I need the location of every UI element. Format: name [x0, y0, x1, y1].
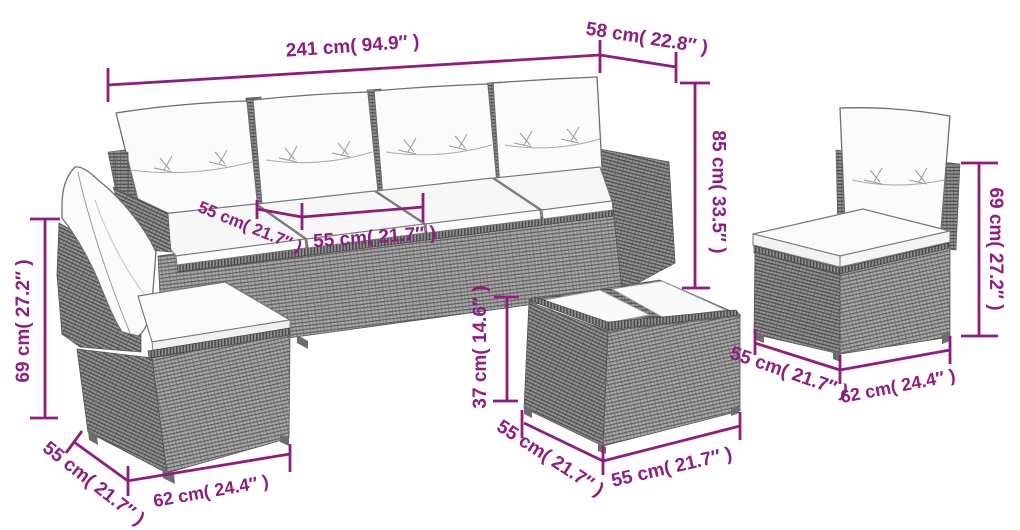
svg-text:69 cm( 27.2″ ): 69 cm( 27.2″ ) — [985, 187, 1006, 310]
svg-text:37 cm( 14.6″ ): 37 cm( 14.6″ ) — [470, 285, 491, 408]
svg-text:69 cm( 27.2″ ): 69 cm( 27.2″ ) — [13, 259, 34, 382]
svg-text:85 cm( 33.5″ ): 85 cm( 33.5″ ) — [708, 130, 729, 253]
